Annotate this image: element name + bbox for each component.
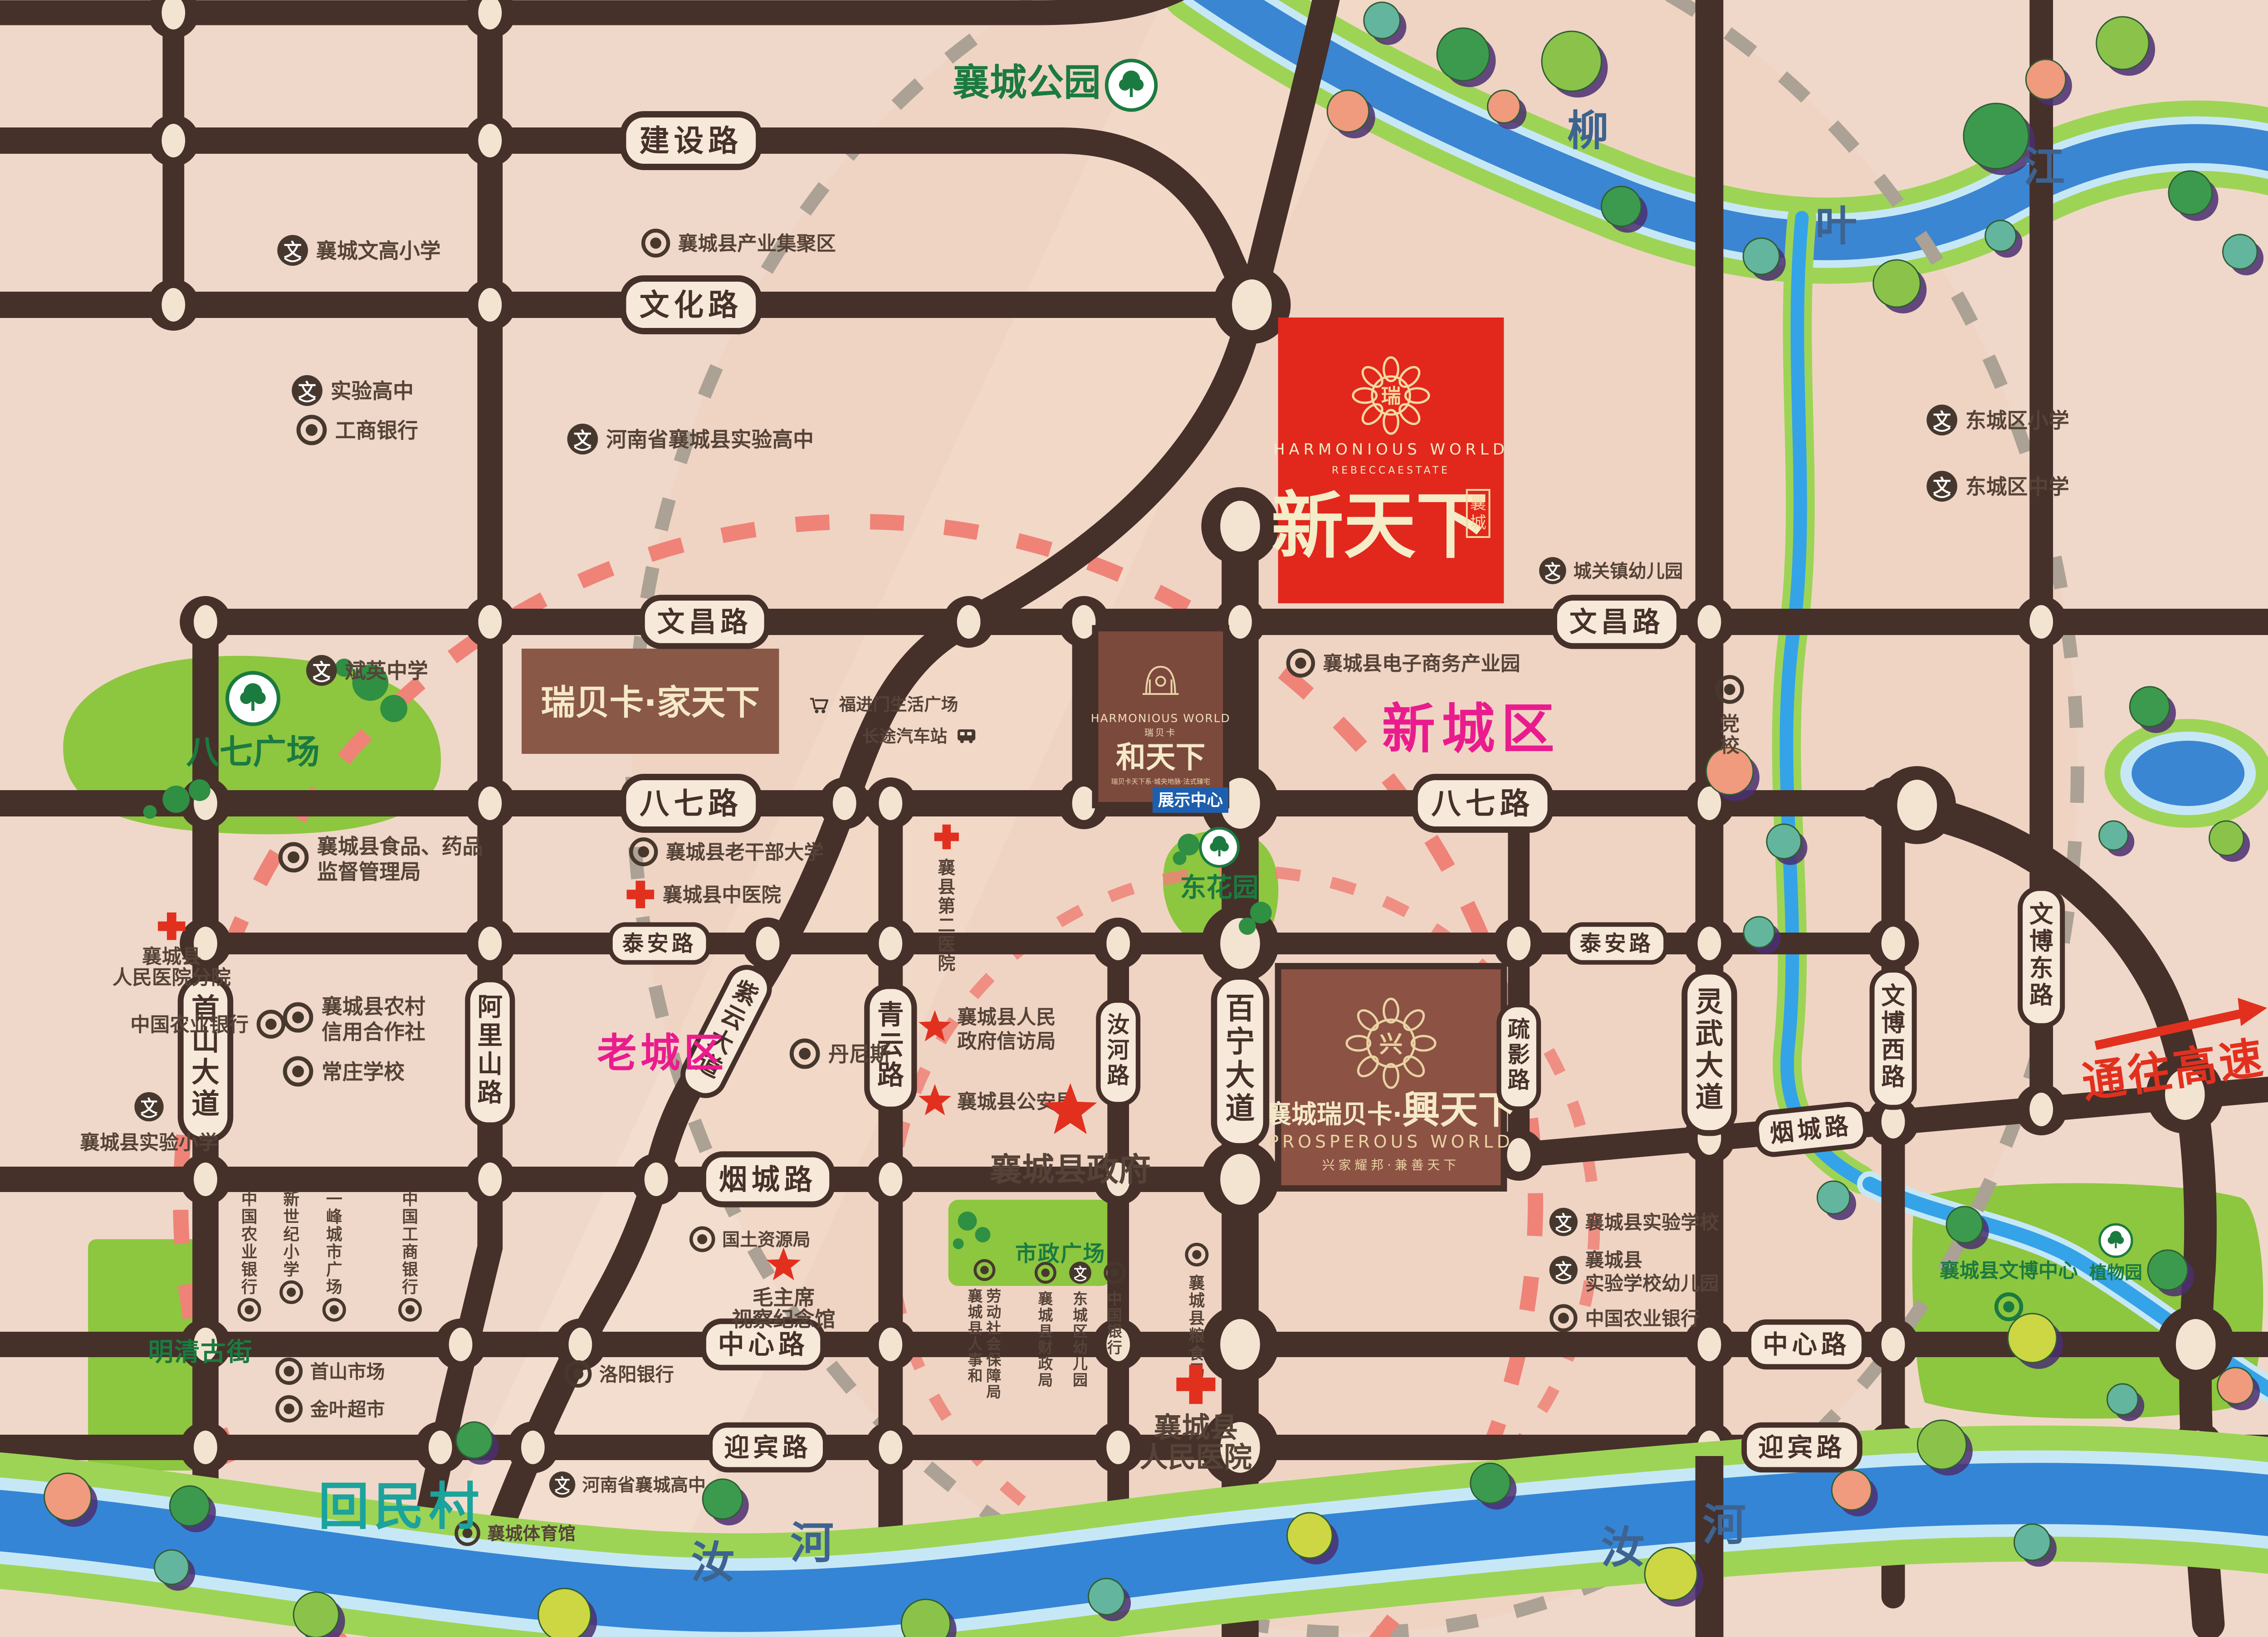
he-char-left: 河: [790, 1518, 834, 1569]
svg-text:襄城县老干部大学: 襄城县老干部大学: [666, 841, 824, 864]
junction-dot: [429, 1431, 452, 1464]
tree-icon: [1107, 60, 1156, 110]
new-town-label: 新城区: [1382, 698, 1561, 760]
svg-text:文博西路: 文博西路: [1881, 982, 1905, 1091]
svg-text:襄县第二医院: 襄县第二医院: [938, 858, 955, 974]
tree-icon: [143, 805, 157, 819]
tree-icon: [44, 1473, 92, 1520]
road-sign-文博西路: 文博西路: [1872, 970, 1914, 1108]
junction-dot: [194, 1431, 217, 1464]
road-sign-汝河路: 汝河路: [1098, 1001, 1138, 1104]
junction-dot: [1228, 605, 1252, 639]
tree-icon: [975, 1227, 991, 1242]
road-sign-八七路: 八七路: [623, 777, 759, 830]
svg-text:河南省襄城县实验高中: 河南省襄城县实验高中: [606, 427, 814, 452]
road-sign-泰安路: 泰安路: [1568, 924, 1666, 963]
junction-dot: [879, 927, 902, 960]
road-sign-阿里山路: 阿里山路: [468, 980, 513, 1125]
tree-icon: [2100, 1224, 2132, 1256]
junction-dot: [1507, 927, 1530, 960]
old-town-label: 老城区: [597, 1030, 727, 1076]
svg-text:襄城县: 襄城县: [1585, 1249, 1642, 1271]
svg-text:政府信访局: 政府信访局: [957, 1031, 1056, 1053]
school-icon: 文: [1539, 557, 1566, 584]
xintianxia-en-line2: REBECCAESTATE: [1332, 465, 1450, 476]
tree-icon: [538, 1588, 591, 1637]
tree-icon: [1946, 1207, 1983, 1243]
svg-text:中心路: 中心路: [1763, 1330, 1850, 1359]
tree-icon: [227, 673, 279, 724]
tree-icon: [2148, 1250, 2188, 1290]
xingtianxia-tagline: 兴家耀邦·兼善天下: [1322, 1158, 1460, 1173]
svg-text:城: 城: [1470, 513, 1486, 532]
svg-text:一峰城市广场: 一峰城市广场: [326, 1190, 342, 1297]
xintianxia-seal: 襄 城: [1467, 490, 1490, 537]
svg-text:百宁大道: 百宁大道: [1226, 992, 1255, 1126]
tree-icon: [155, 1550, 189, 1584]
junction-dot: [1232, 279, 1272, 330]
hetianxia-tagline: 瑞贝卡天下系·城央地脉·法式臻宅: [1111, 777, 1210, 786]
tree-icon: [2097, 17, 2149, 69]
road-sign-文昌路: 文昌路: [642, 598, 767, 646]
tree-icon: [2217, 1368, 2253, 1404]
junction-dot: [1882, 1105, 1905, 1139]
junction-dot: [879, 1328, 902, 1361]
tree-icon: [1542, 31, 1601, 91]
tree-icon: [1364, 2, 1400, 39]
svg-text:中心路: 中心路: [718, 1329, 809, 1360]
svg-text:汝河路: 汝河路: [1107, 1012, 1129, 1089]
road-sign-疏影路: 疏影路: [1499, 1005, 1539, 1109]
svg-text:丹尼斯: 丹尼斯: [828, 1042, 890, 1066]
school-icon: 文: [1549, 1256, 1578, 1285]
svg-text:兴: 兴: [1379, 1031, 1403, 1058]
tree-icon: [1917, 1420, 1966, 1469]
svg-text:中国工商银行: 中国工商银行: [402, 1190, 418, 1297]
poi-binying-middle-school: 文斌英中学: [306, 655, 428, 686]
svg-text:襄城县: 襄城县: [1154, 1411, 1238, 1444]
svg-text:斌英中学: 斌英中学: [345, 659, 428, 683]
svg-text:城关镇幼儿园: 城关镇幼儿园: [1573, 561, 1683, 582]
svg-text:文化路: 文化路: [640, 288, 743, 323]
tree-icon: [1287, 1513, 1333, 1558]
svg-text:河南省襄城高中: 河南省襄城高中: [582, 1475, 706, 1495]
svg-text:文昌路: 文昌路: [657, 606, 752, 638]
svg-text:襄城县农村: 襄城县农村: [322, 994, 425, 1019]
junction-dot: [879, 1431, 902, 1464]
junction-dot: [879, 787, 902, 820]
svg-text:文: 文: [283, 240, 302, 261]
svg-text:中国银行: 中国银行: [1107, 1290, 1122, 1356]
junction-dot: [1220, 1154, 1260, 1205]
junction-dot: [478, 124, 502, 157]
tree-icon: [1645, 1548, 1697, 1600]
tree-icon: [380, 695, 407, 722]
school-icon: 文: [306, 655, 337, 686]
school-icon: 文: [1549, 1208, 1578, 1236]
svg-text:文: 文: [1074, 1265, 1087, 1280]
xingtianxia-en: PROSPEROUS WORLD: [1268, 1132, 1513, 1152]
junction-dot: [1897, 780, 1937, 831]
junction-dot: [478, 605, 502, 639]
junction-dot: [521, 1431, 545, 1464]
svg-text:文: 文: [1555, 1260, 1572, 1280]
svg-text:党校: 党校: [1720, 713, 1740, 757]
ru-char-left: 汝: [691, 1537, 734, 1588]
svg-text:福进门生活广场: 福进门生活广场: [839, 694, 958, 714]
svg-text:劳动社会保障局: 劳动社会保障局: [986, 1287, 1002, 1401]
svg-text:襄城县中医院: 襄城县中医院: [663, 884, 781, 907]
svg-text:襄城县电子商务产业园: 襄城县电子商务产业园: [1323, 653, 1520, 675]
svg-text:襄城县: 襄城县: [142, 946, 201, 968]
poi-shiyan-high-school: 文实验高中: [292, 375, 414, 406]
tree-icon: [1200, 828, 1238, 866]
tree-icon: [2209, 821, 2244, 855]
road-sign-烟城路: 烟城路: [1755, 1103, 1867, 1156]
junction-dot: [879, 1163, 902, 1196]
svg-text:文: 文: [141, 1096, 158, 1116]
hetianxia-title: 和天下: [1116, 739, 1205, 775]
tree-icon: [1985, 220, 2016, 251]
svg-text:信用合作社: 信用合作社: [322, 1020, 425, 1044]
jiatianxia-title: 瑞贝卡·家天下: [541, 683, 760, 723]
junction-dot: [478, 927, 502, 960]
svg-text:国土资源局: 国土资源局: [722, 1230, 811, 1250]
junction-dot: [1106, 1431, 1130, 1464]
svg-text:襄城县政府: 襄城县政府: [990, 1151, 1151, 1188]
junction-dot: [1106, 927, 1130, 960]
jiang-char: 江: [2023, 143, 2065, 191]
tree-icon: [456, 1422, 493, 1458]
poi-yifeng-city-plaza: 一峰城市广场: [324, 1190, 344, 1320]
svg-text:襄城公园: 襄城公园: [953, 61, 1101, 104]
svg-text:中国农业银行: 中国农业银行: [241, 1190, 258, 1297]
svg-text:东城区幼儿园: 东城区幼儿园: [1073, 1290, 1088, 1389]
tree-icon: [1744, 917, 1774, 948]
svg-text:首山市场: 首山市场: [310, 1361, 385, 1383]
junction-dot: [2029, 605, 2053, 639]
junction-dot: [1698, 927, 1721, 960]
junction-dot: [478, 288, 502, 322]
svg-text:疏影路: 疏影路: [1508, 1016, 1530, 1093]
svg-text:襄城县产业集聚区: 襄城县产业集聚区: [678, 233, 836, 255]
poi-gongshang-bank-v: 中国工商银行: [400, 1190, 420, 1320]
jiatianxia-project-block: 瑞贝卡·家天下: [522, 649, 779, 754]
tree-icon: [1601, 186, 1641, 226]
tree-icon: [1327, 90, 1369, 132]
junction-dot: [957, 605, 981, 639]
tree-icon: [189, 779, 210, 801]
svg-text:中国农业银行: 中国农业银行: [130, 1014, 249, 1036]
tree-icon: [958, 1212, 977, 1231]
svg-text:首山大道: 首山大道: [191, 992, 220, 1120]
road-sign-泰安路: 泰安路: [611, 924, 709, 963]
svg-text:工商银行: 工商银行: [335, 418, 418, 443]
poi-nongye-bank-v: 中国农业银行: [239, 1190, 259, 1320]
school-icon: 文: [134, 1092, 163, 1122]
poi-nongye-bank-west: 中国农业银行: [130, 1012, 283, 1036]
tree-icon: [2026, 59, 2066, 99]
svg-text:文: 文: [555, 1476, 570, 1493]
tree-icon: [703, 1479, 743, 1519]
east-lake: [2131, 741, 2244, 806]
huimin-village-label: 回民村: [318, 1477, 484, 1536]
tree-icon: [2014, 1524, 2050, 1560]
junction-dot: [1220, 1319, 1260, 1370]
tree-icon: [1873, 260, 1921, 307]
svg-text:毛主席: 毛主席: [753, 1285, 815, 1310]
poi-chengguanzhen-kindergarten: 文城关镇幼儿园: [1539, 557, 1683, 584]
school-icon: 文: [1926, 471, 1957, 502]
tree-icon: [1173, 851, 1187, 865]
tree-icon: [1743, 238, 1779, 274]
svg-text:泰安路: 泰安路: [622, 931, 696, 956]
poi-ecommerce-industry-park: 襄城县电子商务产业园: [1288, 650, 1520, 675]
road-sign-文化路: 文化路: [623, 279, 759, 331]
svg-text:监督管理局: 监督管理局: [317, 860, 421, 884]
road-sign-迎宾路: 迎宾路: [710, 1425, 826, 1470]
mingqing-street-label: 明清古街: [148, 1338, 253, 1367]
school-icon: 文: [549, 1471, 576, 1498]
ru-char-right: 汝: [1601, 1522, 1644, 1573]
svg-text:襄城县实验小学: 襄城县实验小学: [80, 1132, 218, 1154]
svg-text:文昌路: 文昌路: [1569, 606, 1664, 638]
road-sign-中心路: 中心路: [1749, 1322, 1864, 1367]
svg-text:八七路: 八七路: [1431, 786, 1534, 821]
svg-text:常庄学校: 常庄学校: [322, 1060, 405, 1084]
junction-dot: [161, 288, 185, 322]
junction-dot: [2176, 1319, 2216, 1370]
svg-text:瑞: 瑞: [1381, 385, 1401, 408]
svg-text:文: 文: [1933, 410, 1951, 430]
svg-text:新世纪小学: 新世纪小学: [283, 1190, 299, 1279]
junction-dot: [645, 1163, 668, 1196]
xintianxia-title: 新天下: [1271, 483, 1488, 568]
ye-char: 叶: [1815, 202, 1857, 250]
school-icon: 文: [1926, 405, 1957, 435]
school-icon: 文: [567, 424, 598, 454]
svg-text:襄城县财政局: 襄城县财政局: [1038, 1290, 1053, 1389]
svg-text:实验高中: 实验高中: [331, 379, 414, 403]
hetianxia-project-block: HARMONIOUS WORLD 瑞贝卡 和天下 瑞贝卡天下系·城央地脉·法式臻…: [1091, 628, 1231, 813]
svg-text:八七广场: 八七广场: [186, 733, 320, 772]
svg-text:东花园: 东花园: [1180, 872, 1259, 903]
junction-dot: [1882, 927, 1905, 960]
junction-dot: [194, 1163, 217, 1196]
tree-icon: [2008, 1314, 2057, 1363]
junction-dot: [194, 605, 217, 639]
xintianxia-project-block: 瑞 HARMONIOUS WORLD REBECCAESTATE 新天下 襄 城: [1271, 318, 1509, 603]
road-sign-八七路: 八七路: [1415, 777, 1551, 830]
hetianxia-badge-label: 展示中心: [1158, 791, 1223, 810]
tree-icon: [1437, 28, 1489, 81]
school-icon: 文: [292, 375, 323, 406]
tree-icon: [162, 786, 190, 813]
xintianxia-en-line1: HARMONIOUS WORLD: [1273, 440, 1509, 458]
hetianxia-en: HARMONIOUS WORLD: [1091, 712, 1231, 725]
svg-text:灵武大道: 灵武大道: [1696, 986, 1724, 1114]
svg-text:文: 文: [1933, 476, 1951, 497]
poi-nongye-bank-east: 中国农业银行: [1551, 1306, 1700, 1330]
junction-dot: [1220, 501, 1260, 552]
svg-text:金叶超市: 金叶超市: [310, 1398, 385, 1420]
shizheng-square-label: 市政广场: [1015, 1241, 1105, 1266]
svg-text:襄城县实验学校: 襄城县实验学校: [1585, 1212, 1719, 1234]
svg-text:襄城县文博中心: 襄城县文博中心: [1940, 1260, 2077, 1282]
svg-text:东城区中学: 东城区中学: [1965, 474, 2069, 499]
liu-char: 柳: [1567, 107, 1609, 155]
junction-dot: [1882, 1328, 1905, 1361]
poi-xiangcheng-park: 襄城公园: [953, 60, 1156, 110]
tree-icon: [2099, 821, 2128, 850]
poi-dongchengqu-primary: 文东城区小学: [1926, 405, 2069, 435]
svg-text:文: 文: [1545, 561, 1561, 580]
tree-icon: [1488, 90, 1520, 123]
road-sign-首山大道: 首山大道: [181, 978, 230, 1140]
svg-text:文博东路: 文博东路: [2029, 900, 2053, 1009]
junction-dot: [1698, 605, 1721, 639]
road-sign-烟城路: 烟城路: [703, 1154, 832, 1204]
svg-text:襄城县人事和: 襄城县人事和: [968, 1287, 983, 1385]
svg-text:中国农业银行: 中国农业银行: [1585, 1308, 1700, 1330]
svg-text:植物园: 植物园: [2089, 1263, 2142, 1283]
tree-icon: [1471, 1463, 1510, 1503]
junction-dot: [449, 1328, 473, 1361]
road-sign-迎宾路: 迎宾路: [1744, 1425, 1860, 1470]
svg-text:实验学校幼儿园: 实验学校幼儿园: [1585, 1272, 1719, 1295]
junction-dot: [568, 1328, 592, 1361]
tree-icon: [293, 1592, 339, 1637]
svg-text:建设路: 建设路: [640, 123, 743, 158]
svg-text:人民医院: 人民医院: [1140, 1441, 1252, 1474]
svg-text:长途汽车站: 长途汽车站: [862, 726, 947, 746]
svg-text:襄城县粮食局: 襄城县粮食局: [1189, 1274, 1206, 1381]
tree-icon: [2169, 171, 2212, 215]
school-icon: 文: [277, 235, 308, 266]
road-sign-灵武大道: 灵武大道: [1685, 972, 1735, 1133]
svg-text:襄城县食品、药品: 襄城县食品、药品: [317, 834, 483, 859]
svg-text:阿里山路: 阿里山路: [477, 992, 503, 1108]
poi-dongchengqu-middle: 文东城区中学: [1926, 471, 2069, 502]
road-sign-文昌路: 文昌路: [1554, 598, 1679, 646]
svg-text:八七路: 八七路: [640, 786, 743, 821]
junction-dot: [161, 124, 185, 157]
tree-icon: [1239, 918, 1256, 935]
junction-dot: [478, 787, 502, 820]
svg-text:文: 文: [313, 660, 331, 681]
svg-text:视察纪念馆: 视察纪念馆: [732, 1307, 836, 1332]
tree-icon: [1964, 103, 2028, 169]
svg-text:文: 文: [1555, 1212, 1572, 1231]
junction-dot: [478, 1163, 502, 1196]
svg-text:泰安路: 泰安路: [1580, 931, 1654, 956]
svg-text:东城区小学: 东城区小学: [1965, 408, 2069, 433]
svg-text:文: 文: [298, 380, 316, 401]
svg-text:襄: 襄: [1470, 494, 1486, 513]
junction-dot: [2029, 1093, 2053, 1126]
he-char-right: 河: [1702, 1500, 1746, 1550]
junction-dot: [1698, 1328, 1721, 1361]
road-sign-百宁大道: 百宁大道: [1214, 977, 1266, 1146]
junction-dot: [833, 787, 856, 820]
tree-icon: [1832, 1470, 1872, 1510]
poi-xiangcheng-wengao-primary: 文襄城文高小学: [277, 235, 440, 266]
svg-text:人民医院分院: 人民医院分院: [112, 967, 231, 989]
tree-icon: [2130, 687, 2170, 727]
tree-icon: [1088, 1578, 1124, 1615]
svg-text:襄城体育馆: 襄城体育馆: [487, 1524, 576, 1544]
svg-text:迎宾路: 迎宾路: [1758, 1433, 1846, 1462]
tree-icon: [1817, 1181, 1850, 1214]
tree-icon: [1767, 824, 1801, 859]
junction-dot: [756, 927, 780, 960]
svg-text:襄城文高小学: 襄城文高小学: [316, 239, 441, 263]
svg-text:烟城路: 烟城路: [719, 1163, 817, 1196]
svg-text:迎宾路: 迎宾路: [724, 1433, 811, 1462]
svg-text:洛阳银行: 洛阳银行: [599, 1363, 674, 1385]
location-map-canvas: 瑞 HARMONIOUS WORLD REBECCAESTATE 新天下 襄 城…: [0, 0, 2268, 1637]
svg-text:襄城县人民: 襄城县人民: [957, 1006, 1056, 1029]
tree-icon: [2107, 1384, 2138, 1415]
road-sign-建设路: 建设路: [623, 114, 759, 167]
hetianxia-sub: 瑞贝卡: [1144, 727, 1177, 738]
tree-icon: [170, 1486, 210, 1526]
tree-icon: [2223, 235, 2257, 269]
xingtianxia-project-block: 兴 襄城瑞贝卡·興天下 PROSPEROUS WORLD 兴家耀邦·兼善天下: [1266, 966, 1516, 1188]
svg-text:文: 文: [573, 429, 591, 450]
tree-icon: [953, 1238, 964, 1249]
road-sign-文博东路: 文博东路: [2020, 889, 2063, 1026]
